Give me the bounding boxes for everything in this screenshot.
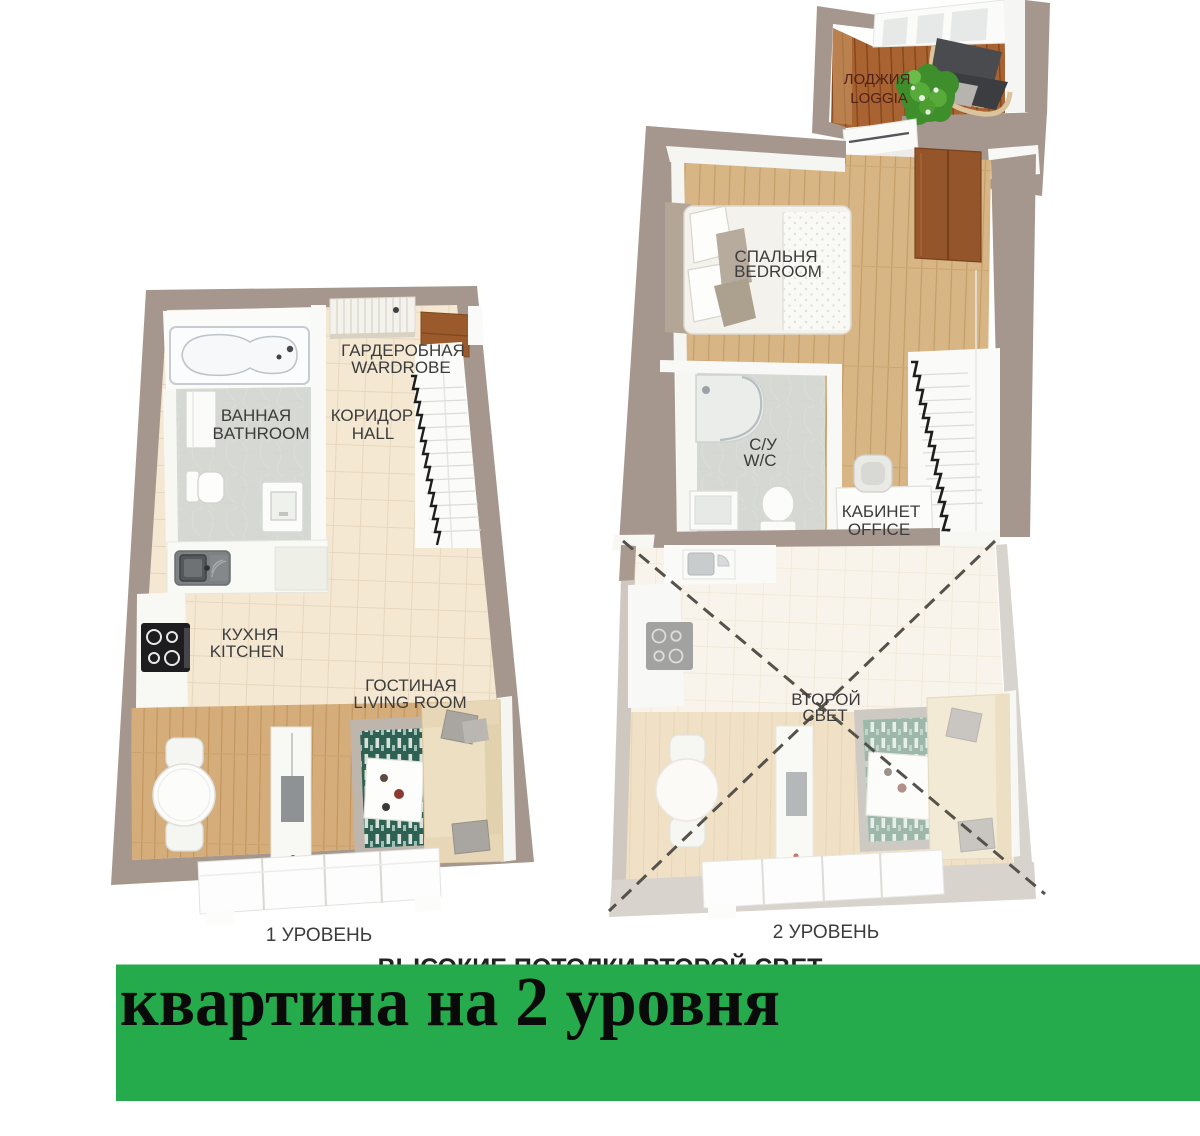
svg-text:КАБИНЕТ: КАБИНЕТ xyxy=(842,502,921,521)
svg-text:LIVING ROOM: LIVING ROOM xyxy=(353,693,466,712)
svg-text:ВАННАЯ: ВАННАЯ xyxy=(221,406,291,425)
svg-text:HALL: HALL xyxy=(352,424,395,443)
svg-text:W/C: W/C xyxy=(743,451,776,470)
svg-text:1 УРОВЕНЬ: 1 УРОВЕНЬ xyxy=(266,925,373,946)
svg-text:СВЕТ: СВЕТ xyxy=(802,706,847,725)
svg-text:квартина на 2 уровня: квартина на 2 уровня xyxy=(120,964,780,1041)
svg-text:2 УРОВЕНЬ: 2 УРОВЕНЬ xyxy=(773,922,880,943)
svg-text:BEDROOM: BEDROOM xyxy=(734,262,822,281)
svg-text:LOGGIA: LOGGIA xyxy=(850,90,908,107)
svg-text:WARDROBE: WARDROBE xyxy=(351,358,451,377)
svg-text:OFFICE: OFFICE xyxy=(848,520,910,539)
svg-text:BATHROOM: BATHROOM xyxy=(213,424,310,443)
svg-text:ЛОДЖИЯ: ЛОДЖИЯ xyxy=(844,71,911,88)
svg-text:KITCHEN: KITCHEN xyxy=(210,642,285,661)
svg-text:КОРИДОР: КОРИДОР xyxy=(331,406,414,425)
